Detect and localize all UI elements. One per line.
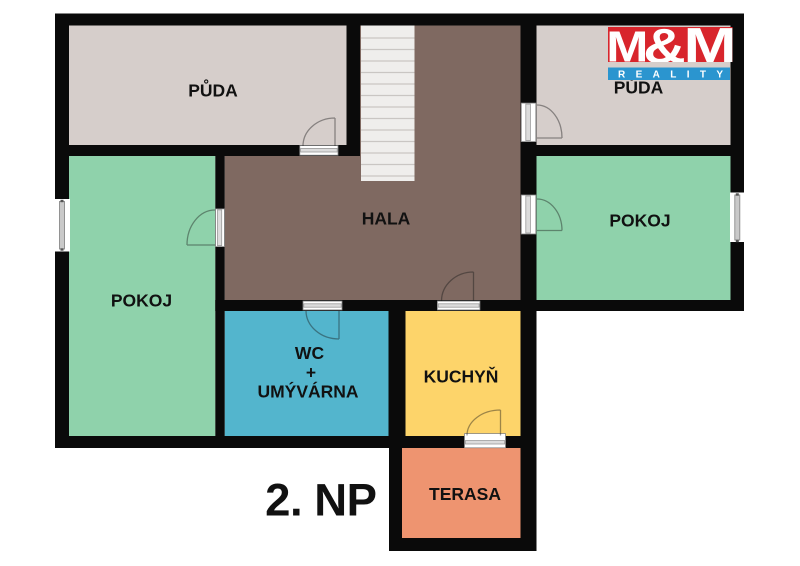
svg-text:2. NP: 2. NP [265,475,376,526]
svg-text:PŮDA: PŮDA [188,79,238,101]
svg-text:POKOJ: POKOJ [609,211,670,231]
svg-text:HALA: HALA [362,209,411,229]
svg-text:UMÝVÁRNA: UMÝVÁRNA [257,381,358,402]
svg-text:+: + [306,363,316,383]
svg-text:WC: WC [295,343,325,363]
svg-text:TERASA: TERASA [429,484,501,504]
svg-text:KUCHYŇ: KUCHYŇ [424,366,499,387]
svg-text:POKOJ: POKOJ [111,291,172,311]
